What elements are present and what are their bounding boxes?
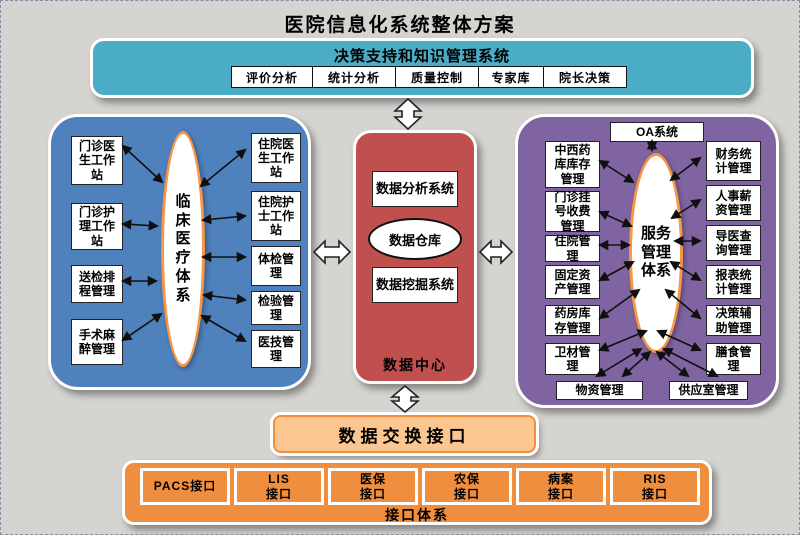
node-lab-test-mgmt: 检验管理 — [251, 291, 301, 325]
node-drug-warehouse-mgmt: 中西药库库存管理 — [545, 141, 600, 188]
node-ris-interface: RIS接口 — [610, 468, 700, 505]
node-registration-fee-mgmt: 门诊挂号收费管理 — [545, 191, 600, 232]
data-warehouse-ellipse: 数据仓库 — [368, 218, 462, 260]
iface-line: 接口 — [548, 487, 574, 502]
node-data-mining-system: 数据挖掘系统 — [372, 267, 458, 303]
iface-line: 接口 — [266, 487, 292, 502]
node-hr-payroll-mgmt: 人事薪资管理 — [706, 185, 761, 221]
node-medtech-mgmt: 医技管理 — [251, 330, 301, 368]
node-inpatient-doctor-ws: 住院医生工作站 — [251, 133, 301, 183]
iface-line: 接口 — [454, 487, 480, 502]
node-inpatient-mgmt: 住院管理 — [545, 235, 600, 262]
node-medical-material-mgmt: 卫材管理 — [545, 343, 600, 375]
clinical-system-panel: 门诊医生工作站 门诊护理工作站 送检排程管理 手术麻醉管理 住院医生工作站 住院… — [48, 114, 311, 390]
node-fixed-assets-mgmt: 固定资产管理 — [545, 265, 600, 299]
node-materials-mgmt: 物资管理 — [556, 381, 643, 400]
node-outpatient-nursing-ws: 门诊护理工作站 — [71, 203, 123, 250]
node-lis-interface: LIS接口 — [234, 468, 324, 505]
arrow-datacenter-service — [480, 241, 512, 263]
decision-support-panel: 决策支持和知识管理系统 评价分析 统计分析 质量控制 专家库 院长决策 — [90, 38, 754, 98]
data-center-label: 数据中心 — [356, 355, 474, 375]
iface-line: 农保 — [454, 472, 480, 487]
iface-line: 医保 — [360, 472, 386, 487]
node-pacs-interface: PACS接口 — [140, 468, 230, 505]
node-data-analysis-system: 数据分析系统 — [372, 171, 458, 207]
node-pharmacy-stock-mgmt: 药房库存管理 — [545, 305, 600, 336]
node-surgery-anesthesia: 手术麻醉管理 — [71, 319, 123, 365]
data-exchange-interface: 数据交换接口 — [273, 415, 536, 453]
node-test-scheduling: 送检排程管理 — [71, 265, 123, 303]
iface-line: PACS接口 — [154, 479, 216, 494]
decision-item-statistics: 统计分析 — [312, 66, 396, 88]
node-guide-query-mgmt: 导医查询管理 — [706, 225, 761, 261]
iface-line: 病案 — [548, 472, 574, 487]
arrow-clinical-datacenter — [314, 241, 350, 263]
clinical-center-ellipse: 临床医疗体系 — [161, 131, 205, 367]
decision-item-quality: 质量控制 — [395, 66, 479, 88]
node-medical-record-interface: 病案接口 — [516, 468, 606, 505]
iface-line: LIS — [268, 472, 290, 487]
iface-line: 接口 — [642, 487, 668, 502]
data-center-panel: 数据分析系统 数据仓库 数据挖掘系统 数据中心 — [353, 130, 477, 384]
node-outpatient-doctor-ws: 门诊医生工作站 — [71, 136, 123, 185]
decision-item-row: 评价分析 统计分析 质量控制 专家库 院长决策 — [232, 66, 627, 88]
node-medical-insurance-interface: 医保接口 — [328, 468, 418, 505]
decision-support-title: 决策支持和知识管理系统 — [93, 45, 751, 66]
node-rural-insurance-interface: 农保接口 — [422, 468, 512, 505]
node-catering-mgmt: 膳食管理 — [706, 343, 761, 375]
interface-system-label: 接口体系 — [125, 505, 709, 525]
clinical-center-label: 临床医疗体系 — [175, 193, 191, 306]
interface-system-panel: PACS接口 LIS接口 医保接口 农保接口 病案接口 RIS接口 接口体系 — [122, 460, 712, 525]
page-title: 医院信息化系统整体方案 — [0, 10, 800, 37]
node-physical-exam-mgmt: 体检管理 — [251, 246, 301, 286]
arrow-datacenter-exchange — [392, 386, 418, 412]
arrow-decision-datacenter — [395, 99, 421, 129]
node-decision-aid-mgmt: 决策辅助管理 — [706, 305, 761, 336]
service-system-panel: OA系统 中西药库库存管理 门诊挂号收费管理 住院管理 固定资产管理 药房库存管… — [515, 114, 779, 408]
node-inpatient-nurse-ws: 住院护士工作站 — [251, 191, 301, 241]
node-finance-stats-mgmt: 财务统计管理 — [706, 141, 761, 181]
iface-line: RIS — [643, 472, 666, 487]
node-supply-room-mgmt: 供应室管理 — [669, 381, 748, 400]
service-center-ellipse: 服务管理体系 — [629, 153, 683, 353]
service-center-label: 服务管理体系 — [640, 225, 672, 281]
node-report-stats-mgmt: 报表统计管理 — [706, 265, 761, 299]
decision-item-evaluation: 评价分析 — [231, 66, 313, 88]
iface-line: 接口 — [360, 487, 386, 502]
decision-item-expertdb: 专家库 — [478, 66, 544, 88]
diagram-canvas: 医院信息化系统整体方案 决策支持和知识管理系统 评价分析 统计分析 质量控制 专… — [0, 0, 800, 535]
node-oa-system: OA系统 — [610, 122, 704, 142]
decision-item-director: 院长决策 — [543, 66, 627, 88]
